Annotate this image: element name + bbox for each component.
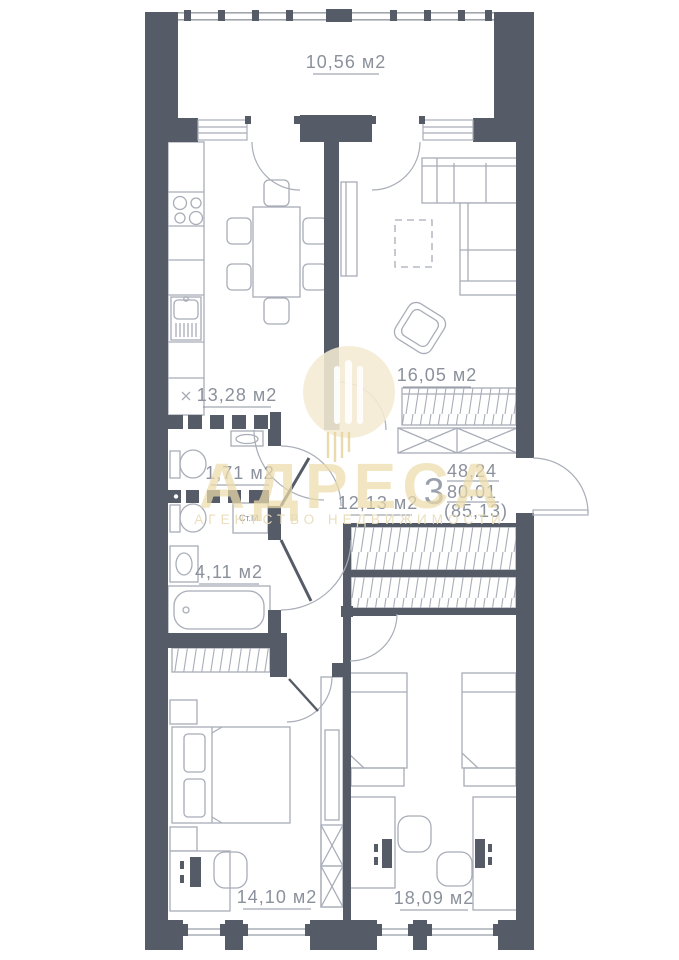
entrance-door-leaf — [533, 510, 588, 515]
wall — [473, 118, 534, 142]
single-bed-2 — [462, 673, 516, 786]
bathtub-icon — [168, 586, 270, 634]
tv-cabinet — [341, 182, 357, 276]
desk-2 — [350, 797, 431, 888]
wall — [516, 142, 534, 458]
nightstand — [170, 700, 197, 724]
door-jamb — [245, 116, 251, 124]
bath-cabinet — [170, 546, 198, 582]
wall — [168, 633, 287, 648]
wall — [268, 429, 281, 446]
wall — [516, 513, 534, 950]
wall — [413, 920, 427, 950]
wall — [225, 920, 243, 950]
wall — [145, 920, 183, 950]
wall — [300, 115, 372, 142]
wall — [270, 633, 287, 677]
wardrobe-frame — [351, 570, 516, 577]
nightstand — [170, 827, 197, 851]
wardrobe-frame — [343, 523, 351, 615]
bedroom2-area-label: 18,09 м2 — [394, 888, 474, 908]
floor-plan: 10,56 м2 13,28 м2 16,05 м2 1,71 м2 12,13… — [0, 0, 679, 960]
bedroom2-door-arc — [350, 614, 397, 661]
wall — [310, 920, 377, 950]
sofa — [422, 158, 517, 295]
entrance-door-arc — [533, 458, 588, 513]
desk-1 — [170, 851, 247, 911]
watermark-subtitle: АГЕНТСТВО НЕДВИЖИМОСТИ — [194, 512, 505, 527]
bedroom1-area-label: 14,10 м2 — [237, 887, 317, 907]
wall — [145, 118, 168, 950]
door-jamb — [370, 116, 376, 124]
door-jamb — [294, 116, 300, 124]
living-area-label: 16,05 м2 — [397, 365, 477, 385]
door-leaf — [281, 540, 311, 601]
dining-table — [227, 180, 327, 324]
wall — [498, 920, 534, 950]
bedroom1-closet — [321, 677, 343, 907]
coffee-table — [395, 220, 432, 267]
double-bed — [172, 727, 290, 823]
bathroom-area-label: 4,11 м2 — [195, 562, 263, 582]
watermark-logo-pillars — [334, 360, 363, 424]
door-leaf — [289, 679, 318, 711]
single-bed-1 — [348, 673, 407, 786]
kitchen-counter — [168, 142, 204, 415]
wall — [343, 617, 351, 920]
armchair — [391, 299, 449, 357]
bathroom-door-arc — [281, 540, 351, 610]
bedroom1-wardrobe — [172, 648, 270, 672]
floor-plan-drawing: 10,56 м2 13,28 м2 16,05 м2 1,71 м2 12,13… — [0, 0, 679, 960]
hall-wardrobe — [351, 527, 516, 608]
living-wardrobe — [402, 388, 516, 425]
balcony-door-arc — [252, 142, 300, 190]
balcony-glazing — [178, 9, 494, 22]
balcony-area-label: 10,56 м2 — [306, 52, 386, 72]
small-sink-icon — [231, 431, 263, 446]
kitchen-area-label: 13,28 м2 — [197, 385, 277, 405]
balcony-door-arc — [372, 142, 420, 190]
door-leaf — [350, 610, 397, 616]
door-jamb — [419, 116, 425, 124]
